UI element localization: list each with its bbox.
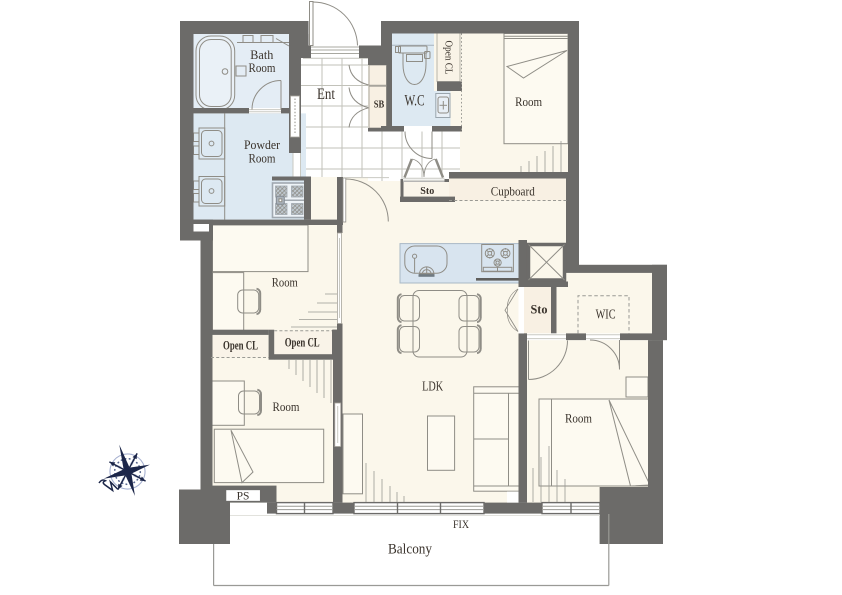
svg-text:Cupboard: Cupboard	[491, 185, 536, 199]
svg-text:Open CL: Open CL	[223, 339, 258, 353]
svg-text:FIX: FIX	[453, 517, 469, 531]
svg-text:Open CL: Open CL	[285, 335, 320, 349]
svg-text:W.C: W.C	[405, 93, 425, 110]
svg-text:Sto: Sto	[531, 303, 548, 317]
svg-text:WIC: WIC	[596, 306, 616, 321]
svg-text:Room: Room	[249, 150, 276, 165]
svg-text:Sto: Sto	[420, 185, 434, 197]
svg-text:PS: PS	[237, 491, 250, 503]
svg-text:LDK: LDK	[422, 379, 443, 394]
svg-text:Room: Room	[273, 399, 300, 414]
svg-text:Balcony: Balcony	[388, 542, 433, 558]
svg-text:Room: Room	[515, 94, 542, 109]
svg-text:Room: Room	[249, 60, 276, 75]
svg-text:SB: SB	[374, 100, 385, 111]
svg-text:Room: Room	[565, 411, 592, 426]
svg-text:Ent: Ent	[317, 86, 335, 103]
svg-text:Open CL: Open CL	[443, 41, 455, 75]
svg-text:Room: Room	[272, 274, 298, 289]
